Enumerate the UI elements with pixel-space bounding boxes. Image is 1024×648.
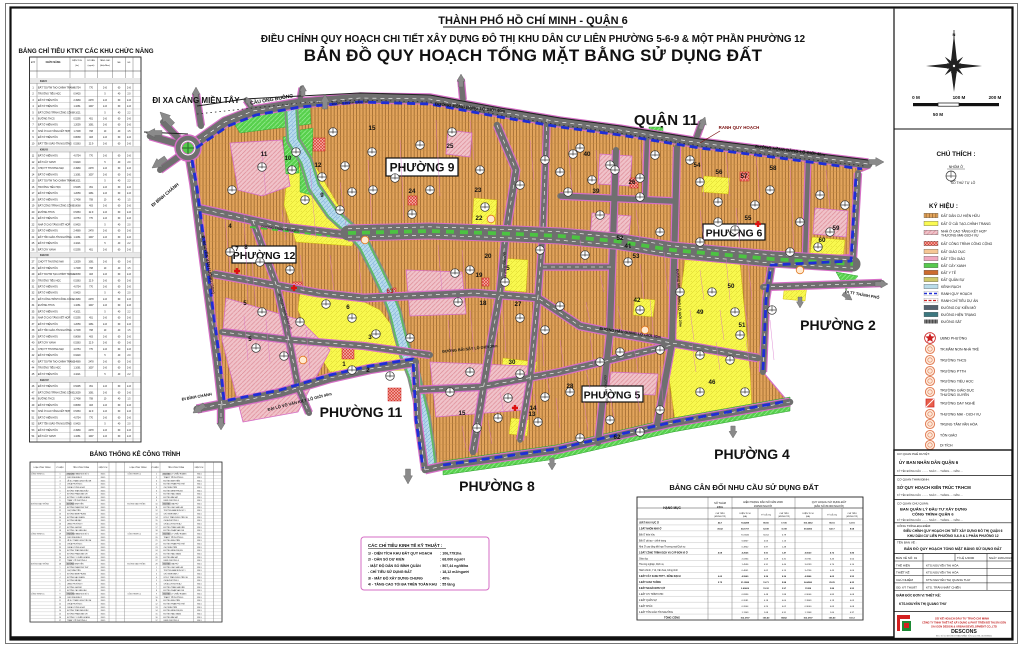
svg-text:KTS.NGUYỄN THỊ QUANG THƯ: KTS.NGUYỄN THỊ QUANG THƯ	[899, 601, 947, 606]
svg-text:25: 25	[447, 143, 454, 150]
svg-text:1061: 1061	[88, 262, 94, 264]
svg-text:RANH QUY HOẠCH: RANH QUY HOẠCH	[719, 125, 760, 130]
svg-text:4.0754: 4.0754	[73, 218, 81, 220]
svg-text:2/ - DÂN SỐ DỰ KIẾN: 2/ - DÂN SỐ DỰ KIẾN	[368, 557, 405, 562]
svg-text:ĐẤT Ở HIỆN HỮU: ĐẤT Ở HIỆN HỮU	[38, 192, 58, 195]
svg-text:CHỨC NĂNG: CHỨC NĂNG	[46, 61, 61, 64]
svg-text:DIỆN TÍCH: DIỆN TÍCH	[195, 466, 204, 469]
svg-text:ĐƯỜNG BÌNH TIÊN: ĐƯỜNG BÌNH TIÊN	[67, 503, 84, 506]
svg-text:DIỆN TÍCH: DIỆN TÍCH	[740, 512, 751, 515]
svg-text:TRƯỜNG DẠY NGHỀ: TRƯỜNG DẠY NGHỀ	[940, 401, 976, 406]
svg-text:ĐƯỜNG MINH PHỤNG: ĐƯỜNG MINH PHỤNG	[164, 489, 184, 492]
svg-text:CHÙA PHƯỜNG 5: CHÙA PHƯỜNG 5	[67, 602, 82, 605]
svg-text:ĐẤT Ở CẢI TẠO-CHỈNH TRANG: ĐẤT Ở CẢI TẠO-CHỈNH TRANG	[941, 221, 991, 226]
svg-text:ĐƯỜNG GIAO THÔNG: ĐƯỜNG GIAO THÔNG	[128, 563, 147, 566]
svg-text:KHU DÂN CƯ LIÊN PHƯỜNG 5-6-9 &: KHU DÂN CƯ LIÊN PHƯỜNG 5-6-9 & 1 PHẦN PH…	[907, 533, 998, 538]
svg-text:TỈ LỆ 1/2000: TỈ LỆ 1/2000	[957, 555, 975, 560]
svg-text:1.ĐẤT CH. TRÌNH KHO: 1.ĐẤT CH. TRÌNH KHO	[639, 593, 664, 596]
svg-text:0.9420: 0.9420	[73, 224, 81, 226]
svg-text:ĐẤT TÔN GIÁO-TÍN NGƯỠNG: ĐẤT TÔN GIÁO-TÍN NGƯỠNG	[38, 423, 72, 426]
svg-text:: 106,7791ha: : 106,7791ha	[440, 552, 462, 556]
svg-text:: 40%: : 40%	[440, 576, 450, 580]
svg-text:Đất Ở hiện hữu: Đất Ở hiện hữu	[639, 534, 656, 537]
svg-text:DESCONS: DESCONS	[951, 629, 977, 635]
svg-text:CHỢ-TT THƯƠNG MẠI: CHỢ-TT THƯƠNG MẠI	[38, 167, 64, 170]
svg-text:UBND PHƯỜNG 9: UBND PHƯỜNG 9	[67, 582, 82, 585]
svg-text:0.5363: 0.5363	[73, 143, 81, 145]
svg-text:1.2059: 1.2059	[73, 392, 81, 394]
svg-text:(HA): (HA)	[806, 515, 810, 518]
svg-text:SỐ THỨ TỰ LÔ: SỐ THỨ TỰ LÔ	[951, 180, 976, 185]
svg-text:TRUNG TÂM VĂN HÓA: TRUNG TÂM VĂN HÓA	[940, 422, 978, 427]
svg-text:LÊ B.C TRẦN DUNG TIỂU 3H: LÊ B.C TRẦN DUNG TIỂU 3H	[67, 599, 92, 602]
svg-text:HẠNG MỤC: HẠNG MỤC	[663, 506, 681, 510]
svg-text:0.5363: 0.5363	[73, 280, 81, 282]
svg-text:0.8068: 0.8068	[73, 405, 81, 407]
svg-text:PHƯỜNG 2: PHƯỜNG 2	[800, 316, 876, 333]
svg-text:ĐƯỜNG CAO VĂN LẦU: ĐƯỜNG CAO VĂN LẦU	[67, 529, 87, 532]
svg-text:1061: 1061	[88, 324, 94, 326]
svg-text:(Hiện/Max): (Hiện/Max)	[100, 65, 110, 67]
svg-text:TỶ LỆ (%): TỶ LỆ (%)	[827, 514, 837, 517]
svg-text:KHU II: KHU II	[40, 147, 48, 151]
svg-text:ĐƯỜNG THCS: ĐƯỜNG THCS	[38, 304, 55, 307]
svg-text:74.4288: 74.4288	[741, 522, 750, 525]
svg-text:CÔNG TRÌNH QUẬN 6: CÔNG TRÌNH QUẬN 6	[912, 512, 954, 517]
svg-text:DI TÍCH: DI TÍCH	[940, 444, 953, 448]
svg-text:23: 23	[475, 187, 482, 194]
svg-text:: 18,12 m2/người: : 18,12 m2/người	[440, 570, 469, 574]
svg-text:LOẠI CÔNG TRÌNH: LOẠI CÔNG TRÌNH	[34, 466, 51, 469]
svg-text:THƯỜNG XUYÊN: THƯỜNG XUYÊN	[940, 392, 969, 397]
svg-text:18: 18	[480, 300, 487, 307]
svg-text:1.1081: 1.1081	[73, 106, 81, 108]
svg-text:TRƯỜNG MẦM NON SỐ 1: TRƯỜNG MẦM NON SỐ 1	[67, 473, 89, 476]
svg-text:TỶ LỆ (%): TỶ LỆ (%)	[761, 514, 771, 517]
svg-text:DIỆN TÍCH: DIỆN TÍCH	[803, 512, 814, 515]
svg-text:50: 50	[728, 283, 735, 290]
svg-text:BẢNG CHỈ TIÊU KTKT CÁC KHU CHỨ: BẢNG CHỈ TIÊU KTKT CÁC KHU CHỨC NĂNG	[18, 47, 153, 55]
svg-text:ĐƯỜNG PHẠM VĂN CHÍ: ĐƯỜNG PHẠM VĂN CHÍ	[164, 589, 185, 592]
svg-text:4.ĐẤT TÔN GIÁO TÍN NGƯỠNG: 4.ĐẤT TÔN GIÁO TÍN NGƯỠNG	[639, 611, 673, 614]
svg-text:ĐẤT Ở HIỆN HỮU: ĐẤT Ở HIỆN HỮU	[38, 267, 58, 270]
svg-text:CHỢ BÌNH TIÊN: CHỢ BÌNH TIÊN	[67, 569, 81, 572]
svg-text:TRẠM Y TẾ PHƯỜNG 6: TRẠM Y TẾ PHƯỜNG 6	[164, 596, 184, 599]
svg-text:ĐƯỜNG BÃI SẬY: ĐƯỜNG BÃI SẬY	[164, 616, 179, 619]
svg-text:TRƯỜNG TIỂU HỌC: TRƯỜNG TIỂU HỌC	[38, 367, 61, 370]
svg-text:13: 13	[529, 411, 536, 418]
svg-text:0.2081: 0.2081	[742, 600, 749, 602]
svg-text:ĐẤT TÔN GIÁO: ĐẤT TÔN GIÁO	[941, 256, 966, 261]
svg-text:ĐƯỜNG PHẠM VĂN CHÍ: ĐƯỜNG PHẠM VĂN CHÍ	[67, 553, 88, 556]
svg-text:CHỈ TIÊU: CHỈ TIÊU	[779, 512, 789, 515]
svg-text:THIẾT KẾ: THIẾT KẾ	[896, 570, 909, 575]
svg-text:TRƯỜNG MẦM NON SỐ 1: TRƯỜNG MẦM NON SỐ 1	[164, 569, 186, 572]
svg-text:ĐẤT DÂN CƯ HIỆN HỮU: ĐẤT DÂN CƯ HIỆN HỮU	[941, 213, 980, 218]
svg-text:TRƯỜNG MẦM NON SỐ 1: TRƯỜNG MẦM NON SỐ 1	[67, 592, 89, 595]
svg-text:ĐƯỜNG LÝ CHIÊU HOÀNG: ĐƯỜNG LÝ CHIÊU HOÀNG	[67, 616, 91, 619]
svg-text:ĐƯỜNG HẬU GIANG: ĐƯỜNG HẬU GIANG	[67, 516, 85, 519]
svg-text:CHÙA PHƯỜNG 5: CHÙA PHƯỜNG 5	[67, 483, 82, 486]
svg-text:TRẠM Y TẾ PHƯỜNG 6: TRẠM Y TẾ PHƯỜNG 6	[164, 476, 184, 479]
svg-text:ĐƯỜNG BÃI SẬY: ĐƯỜNG BÃI SẬY	[67, 519, 82, 522]
svg-text:ĐƯỜNG TRẦN VĂN KIỂU: ĐƯỜNG TRẦN VĂN KIỂU	[164, 526, 186, 529]
svg-text:50 M: 50 M	[933, 112, 943, 117]
svg-text:Đ/C: SỐ 10 ĐƯỜNG TRẦN NHÂN TÔN: Đ/C: SỐ 10 ĐƯỜNG TRẦN NHÂN TÔN Q.10 TEL:…	[936, 635, 993, 638]
svg-text:4.1021: 4.1021	[73, 374, 81, 376]
svg-text:LÊ B.C TRẦN DUNG TIỂU 3H: LÊ B.C TRẦN DUNG TIỂU 3H	[164, 516, 189, 519]
svg-text:KTS. TRẦN NHẬT CHIẾN: KTS. TRẦN NHẬT CHIẾN	[926, 584, 961, 589]
svg-text:UBND PHƯỜNG: UBND PHƯỜNG	[940, 336, 967, 341]
svg-text:TÊN CÔNG TRÌNH: TÊN CÔNG TRÌNH	[73, 466, 90, 469]
svg-text:I.ĐẤT KHU VỰC Ở: I.ĐẤT KHU VỰC Ở	[639, 522, 659, 525]
svg-text:4.0754: 4.0754	[73, 417, 81, 419]
svg-text:CHỈ TIÊU: CHỈ TIÊU	[847, 512, 857, 515]
svg-text:ĐẤT CÂY XANH: ĐẤT CÂY XANH	[38, 248, 56, 251]
svg-text:BẢNG THỐNG KÊ CÔNG TRÌNH: BẢNG THỐNG KÊ CÔNG TRÌNH	[90, 450, 181, 458]
svg-text:CHỢ BÌNH TIÊN: CHỢ BÌNH TIÊN	[67, 509, 81, 512]
svg-text:SỐ DÂN: SỐ DÂN	[87, 59, 95, 62]
svg-text:LÊ B.C TRẦN DUNG TIỂU 3H: LÊ B.C TRẦN DUNG TIỂU 3H	[67, 539, 92, 542]
svg-text:106.40: 106.40	[829, 617, 836, 620]
svg-text:1007: 1007	[88, 174, 94, 176]
svg-text:BẢN ĐỒ QUY HOẠCH TỔNG MẶT BẰNG: BẢN ĐỒ QUY HOẠCH TỔNG MẶT BẰNG SỬ DỤNG Đ…	[304, 46, 763, 65]
svg-text:PHƯỜNG 11: PHƯỜNG 11	[320, 403, 403, 420]
svg-text:0.8336: 0.8336	[742, 594, 749, 596]
svg-text:0.5295: 0.5295	[73, 318, 81, 320]
svg-text:ĐƯỜNG TRẦN VĂN KIỂU: ĐƯỜNG TRẦN VĂN KIỂU	[67, 549, 89, 552]
svg-text:CHÚ VINH BÌNH 2: CHÚ VINH BÌNH 2	[67, 476, 82, 479]
svg-text:ĐƯỜNG PHẠM PHÚ THỨ: ĐƯỜNG PHẠM PHÚ THỨ	[67, 566, 89, 569]
svg-text:30: 30	[509, 359, 516, 366]
svg-text:ĐƯỜNG LÝ CHIÊU HOÀNG: ĐƯỜNG LÝ CHIÊU HOÀNG	[164, 592, 188, 595]
svg-text:CHÙA LƯƠNG HOA 2: CHÙA LƯƠNG HOA 2	[164, 582, 182, 585]
svg-text:TRƯỜNG PTTH: TRƯỜNG PTTH	[940, 369, 966, 374]
svg-text:TRẠM Y TẾ PHƯỜNG 6: TRẠM Y TẾ PHƯỜNG 6	[67, 619, 87, 622]
svg-text:ĐƯỜNG CAO VĂN LẦU: ĐƯỜNG CAO VĂN LẦU	[67, 589, 87, 592]
svg-text:6: 6	[346, 304, 350, 311]
svg-text:ĐƯỜNG GIA PHÚ: ĐƯỜNG GIA PHÚ	[67, 526, 83, 529]
svg-text:1.7408: 1.7408	[805, 612, 812, 614]
svg-text:KÝ HIỆU: KÝ HIỆU	[56, 466, 64, 469]
svg-text:62.08: 62.08	[763, 529, 769, 531]
svg-text:ĐẤT Ở HIỆN HỮU: ĐẤT Ở HIỆN HỮU	[38, 404, 58, 407]
svg-text:CƠ QUAN PHÊ DUYỆT:: CƠ QUAN PHÊ DUYỆT:	[897, 451, 930, 456]
svg-text:CHỢ BÌNH TIÊN: CHỢ BÌNH TIÊN	[164, 606, 178, 609]
svg-text:2478: 2478	[88, 361, 94, 363]
svg-text:ĐẤT Ở HIỆN HỮU: ĐẤT Ở HIỆN HỮU	[38, 173, 58, 176]
svg-text:1.7408: 1.7408	[73, 330, 81, 332]
svg-text:58: 58	[770, 165, 777, 172]
svg-text:22: 22	[476, 215, 483, 222]
svg-text:8: 8	[244, 244, 248, 251]
svg-text:62: 62	[614, 434, 621, 441]
svg-text:24: 24	[409, 188, 416, 195]
svg-text:NHÀ Ở CAO TẦNG KẾT HỢP: NHÀ Ở CAO TẦNG KẾT HỢP	[38, 410, 71, 413]
svg-text:TRƯỜNG MẦM NON SỐ 1: TRƯỜNG MẦM NON SỐ 1	[67, 533, 89, 536]
svg-text:TÔN GIÁO: TÔN GIÁO	[940, 433, 957, 438]
svg-text:64.17: 64.17	[829, 528, 835, 531]
svg-text:QUẬN 11: QUẬN 11	[634, 111, 698, 129]
svg-text:ĐƯỜNG MINH PHỤNG: ĐƯỜNG MINH PHỤNG	[164, 609, 184, 612]
svg-text:2478: 2478	[88, 100, 94, 102]
svg-text:ĐƯỜNG MINH PHỤNG: ĐƯỜNG MINH PHỤNG	[67, 513, 87, 516]
svg-text:ĐẤT Ở HIỆN HỮU: ĐẤT Ở HIỆN HỮU	[38, 230, 58, 233]
svg-text:50.64: 50.64	[763, 535, 769, 537]
svg-text:14: 14	[530, 405, 537, 412]
svg-text:2.ĐẤT QUÂN SỰ: 2.ĐẤT QUÂN SỰ	[639, 599, 657, 602]
svg-text:0.5363: 0.5363	[73, 212, 81, 214]
svg-text:0.9006: 0.9006	[805, 594, 812, 596]
svg-text:11: 11	[261, 151, 268, 158]
svg-text:1.7408: 1.7408	[73, 131, 81, 133]
svg-text:1007: 1007	[88, 436, 94, 438]
svg-text:51: 51	[739, 322, 746, 329]
svg-text:2.4969: 2.4969	[73, 299, 81, 301]
svg-text:PHƯỜNG 9: PHƯỜNG 9	[390, 160, 455, 175]
svg-text:TRẠM Y TẾ PHƯỜNG 6: TRẠM Y TẾ PHƯỜNG 6	[67, 499, 87, 502]
svg-text:53: 53	[633, 253, 640, 260]
svg-text:ĐƯỜNG BÌNH TIÊN: ĐƯỜNG BÌNH TIÊN	[164, 539, 181, 542]
svg-text:CÔNG TRÌNH-ĐỊA ĐIỂM:: CÔNG TRÌNH-ĐỊA ĐIỂM:	[897, 523, 931, 528]
svg-text:22.9: 22.9	[89, 411, 94, 413]
svg-text:64.1707: 64.1707	[741, 528, 750, 531]
svg-text:4.1021: 4.1021	[73, 311, 81, 313]
svg-text:ĐỊNH: ĐỊNH	[717, 505, 723, 509]
svg-text:21.0588: 21.0588	[741, 582, 750, 584]
svg-text:UBND PHƯỜNG 9: UBND PHƯỜNG 9	[164, 619, 179, 622]
svg-text:1.1081: 1.1081	[73, 174, 81, 176]
svg-text:40: 40	[584, 151, 591, 158]
svg-text:52: 52	[617, 235, 624, 242]
svg-text:ĐẤT T.DVTM TẠO-CHỈNH TRANG: ĐẤT T.DVTM TẠO-CHỈNH TRANG	[38, 86, 75, 89]
svg-text:DIỆN TÍCH: DIỆN TÍCH	[99, 466, 108, 469]
svg-text:ĐẤT Ở HIỆN HỮU: ĐẤT Ở HIỆN HỮU	[38, 335, 58, 338]
svg-text:(M2/NGƯỜI): (M2/NGƯỜI)	[846, 515, 858, 518]
svg-text:RANH QUY HOẠCH: RANH QUY HOẠCH	[941, 292, 973, 296]
svg-text:39: 39	[593, 188, 600, 195]
svg-text:CÔNG TY TNHH THIẾT KẾ XÂY DỰNG: CÔNG TY TNHH THIẾT KẾ XÂY DỰNG & PHÁT TR…	[922, 622, 1006, 625]
svg-text:CHÚ THÍCH :: CHÚ THÍCH :	[936, 149, 975, 158]
svg-text:LÊ B.C TRẦN DUNG TIỂU 3H: LÊ B.C TRẦN DUNG TIỂU 3H	[67, 479, 92, 482]
svg-text:TR.MẦM NON-NHÀ TRẺ: TR.MẦM NON-NHÀ TRẺ	[940, 347, 980, 352]
svg-text:KÊNH RẠCH: KÊNH RẠCH	[941, 284, 962, 289]
svg-text:ĐƯỜNG BÃI SẬY: ĐƯỜNG BÃI SẬY	[67, 579, 82, 582]
svg-text:Giáo dục: Giáo dục	[639, 558, 649, 560]
svg-text:ĐƯỜNG PHẠM VĂN CHÍ: ĐƯỜNG PHẠM VĂN CHÍ	[67, 612, 88, 615]
svg-text:ĐƯỜNG TRẦN VĂN KIỂU: ĐƯỜNG TRẦN VĂN KIỂU	[164, 586, 186, 589]
svg-text:106.40: 106.40	[763, 617, 770, 620]
svg-text:ĐƯỜNG PHẠM PHÚ THỨ: ĐƯỜNG PHẠM PHÚ THỨ	[164, 543, 186, 546]
svg-text:PHƯỜNG 4: PHƯỜNG 4	[714, 445, 790, 462]
svg-text:UBND PHƯỜNG 9: UBND PHƯỜNG 9	[67, 523, 82, 526]
svg-text:4.9960: 4.9960	[742, 575, 749, 578]
svg-text:ĐI XA CẢNG MIỀN TÂY: ĐI XA CẢNG MIỀN TÂY	[152, 95, 240, 105]
svg-text:3.ĐẤT CÂY XANH TDTT - KÊNH RẠC: 3.ĐẤT CÂY XANH TDTT - KÊNH RẠCH	[639, 575, 681, 578]
svg-text:CÁC CHỈ TIÊU KINH TẾ KỸ THUẬT: CÁC CHỈ TIÊU KINH TẾ KỸ THUẬT :	[368, 543, 443, 548]
svg-text:2.4969: 2.4969	[73, 100, 81, 102]
svg-text:ĐẤT CÂY XANH: ĐẤT CÂY XANH	[38, 161, 56, 164]
svg-text:CHÙA PHƯỜNG 5: CHÙA PHƯỜNG 5	[164, 519, 179, 522]
svg-text:THÀNH PHỐ HỒ CHÍ MINH - QUẬN 6: THÀNH PHỐ HỒ CHÍ MINH - QUẬN 6	[438, 13, 627, 27]
svg-text:19.73: 19.73	[763, 582, 769, 584]
svg-text:ĐẤT Ở HIỆN HỮU: ĐẤT Ở HIỆN HỮU	[38, 242, 58, 245]
svg-text:4: 4	[228, 223, 232, 230]
svg-text:MĐ: MĐ	[117, 62, 121, 64]
svg-text:ĐƯỜNG THCS: ĐƯỜNG THCS	[38, 211, 55, 214]
svg-text:2478: 2478	[88, 168, 94, 170]
svg-text:ĐẤT T.DVTM TẠO-CHỈNH TRANG: ĐẤT T.DVTM TẠO-CHỈNH TRANG	[38, 360, 75, 363]
svg-text:0.5363: 0.5363	[73, 411, 81, 413]
svg-text:ĐẤT Ở HIỆN HỮU: ĐẤT Ở HIỆN HỮU	[38, 373, 58, 376]
svg-text:TẦNG CAO: TẦNG CAO	[100, 59, 111, 62]
svg-text:CÔNG TRÌNH CC: CÔNG TRÌNH CC	[31, 473, 45, 476]
svg-text:4.5020: 4.5020	[805, 551, 812, 554]
svg-text:NHÓM Ở: NHÓM Ở	[949, 164, 963, 169]
svg-text:CHÙA LƯƠNG HOA 2: CHÙA LƯƠNG HOA 2	[67, 486, 85, 489]
svg-text:ĐẤT Ở HIỆN HỮU: ĐẤT Ở HIỆN HỮU	[38, 416, 58, 419]
svg-text:ĐẤT Ở HIỆN HỮU: ĐẤT Ở HIỆN HỮU	[38, 429, 58, 432]
svg-text:CÔNG TRÌNH CC: CÔNG TRÌNH CC	[128, 592, 142, 595]
svg-text:CÔNG TRÌNH CC: CÔNG TRÌNH CC	[128, 533, 142, 536]
svg-text:KTS.NGUYỄN THỊ HÒA: KTS.NGUYỄN THỊ HÒA	[926, 570, 958, 575]
svg-text:II.ĐẤT NGOÀI ĐƠN VỊ Ở: II.ĐẤT NGOÀI ĐƠN VỊ Ở	[639, 587, 665, 590]
svg-text:1061: 1061	[88, 392, 94, 394]
svg-text:ĐẤT T.DVTM TẠO-CHỈNH TRANG: ĐẤT T.DVTM TẠO-CHỈNH TRANG	[38, 273, 75, 276]
svg-text:1007: 1007	[88, 305, 94, 307]
svg-text:0.9420: 0.9420	[73, 162, 81, 164]
svg-text:ĐƯỜNG CAO VĂN LẦU: ĐƯỜNG CAO VĂN LẦU	[164, 506, 184, 509]
svg-text:0.8068: 0.8068	[73, 137, 81, 139]
svg-text:SỞ KẾ HOẠCH ĐẦU TƯ TP.HỒ CHÍ M: SỞ KẾ HOẠCH ĐẦU TƯ TP.HỒ CHÍ MINH	[935, 616, 989, 621]
svg-text:GIÁM ĐỐC ĐƠN VỊ THIẾT KẾ:: GIÁM ĐỐC ĐƠN VỊ THIẾT KẾ:	[896, 593, 941, 598]
svg-text:TRƯỜNG TIỂU HỌC: TRƯỜNG TIỂU HỌC	[38, 93, 61, 96]
svg-text:ĐƯỜNG GIA PHÚ: ĐƯỜNG GIA PHÚ	[164, 503, 180, 506]
svg-text:ĐẤT Ở HIỆN HỮU: ĐẤT Ở HIỆN HỮU	[38, 310, 58, 313]
svg-text:ĐƯỜNG LÝ CHIÊU HOÀNG: ĐƯỜNG LÝ CHIÊU HOÀNG	[164, 533, 188, 536]
svg-text:26: 26	[629, 179, 636, 186]
svg-text:ĐẤT CÔNG TRÌNH CÔNG CỘNG: ĐẤT CÔNG TRÌNH CÔNG CỘNG	[38, 205, 74, 208]
svg-text:3.60609: 3.60609	[741, 588, 750, 590]
svg-text:102.2797: 102.2797	[740, 618, 750, 620]
svg-text:ĐẤT CÔNG TRÌNH CÔNG CỘNG: ĐẤT CÔNG TRÌNH CÔNG CỘNG	[941, 241, 993, 246]
svg-text:57: 57	[741, 173, 748, 180]
svg-text:TRƯỜNG TIỂU HỌC: TRƯỜNG TIỂU HỌC	[38, 186, 61, 189]
svg-text:1.4536: 1.4536	[742, 564, 749, 566]
svg-text:ĐẤT Y TẾ: ĐẤT Y TẾ	[941, 270, 957, 275]
svg-text:RANH CHỈ TIÊU DỰ ÁN: RANH CHỈ TIÊU DỰ ÁN	[941, 298, 978, 303]
svg-text:DIỆN TÍCH: DIỆN TÍCH	[72, 59, 83, 62]
svg-text:ĐẤT Ở HIỆN HỮU: ĐẤT Ở HIỆN HỮU	[38, 286, 58, 289]
svg-text:ĐƯỜNG HẬU GIANG: ĐƯỜNG HẬU GIANG	[164, 553, 182, 556]
svg-text:10: 10	[285, 155, 292, 162]
svg-text:ĐƯỜNG SẮT: ĐƯỜNG SẮT	[941, 319, 962, 324]
svg-text:UBND PHƯỜNG 9: UBND PHƯỜNG 9	[164, 559, 179, 562]
svg-text:59: 59	[833, 225, 840, 232]
svg-text:STT: STT	[31, 62, 36, 64]
svg-text:ĐẤT TÔN GIÁO-TÍN NGƯỠNG: ĐẤT TÔN GIÁO-TÍN NGƯỠNG	[38, 142, 72, 145]
svg-text:CÔNG TRÌNH CC: CÔNG TRÌNH CC	[31, 592, 45, 595]
svg-text:19: 19	[476, 272, 483, 279]
svg-text:ĐƯỜNG MINH PHỤNG: ĐƯỜNG MINH PHỤNG	[67, 573, 87, 576]
svg-text:0.8068: 0.8068	[73, 336, 81, 338]
svg-text:ĐẤT CÔNG TRÌNH CÔNG CỘNG: ĐẤT CÔNG TRÌNH CÔNG CỘNG	[38, 298, 74, 301]
svg-text:LÊ B.C TRẦN DUNG TIỂU 3H: LÊ B.C TRẦN DUNG TIỂU 3H	[164, 576, 189, 579]
svg-text:0.8068: 0.8068	[73, 274, 81, 276]
svg-text:CHỦ NHIỆM: CHỦ NHIỆM	[896, 577, 914, 582]
svg-text:2478: 2478	[88, 231, 94, 233]
svg-text:CÔNG TRÌNH CC: CÔNG TRÌNH CC	[128, 473, 142, 476]
svg-text:25.25: 25.25	[829, 582, 835, 584]
svg-text:Thương nghiệp, Dịch vụ: Thương nghiệp, Dịch vụ	[639, 564, 664, 566]
svg-text:17.06: 17.06	[781, 523, 787, 525]
svg-text:NHÀ Ở CAO TẦNG KẾT HỢP: NHÀ Ở CAO TẦNG KẾT HỢP	[38, 223, 71, 226]
svg-text:ĐẤT Ở HIỆN HỮU: ĐẤT Ở HIỆN HỮU	[38, 217, 58, 220]
svg-text:200 M: 200 M	[989, 95, 1002, 100]
svg-text:CƠ QUAN THẨM ĐỊNH:: CƠ QUAN THẨM ĐỊNH:	[897, 477, 930, 482]
svg-text:ĐẤT Ở HIỆN HỮU: ĐẤT Ở HIỆN HỮU	[38, 124, 58, 127]
svg-text:CHÚ VINH BÌNH 2: CHÚ VINH BÌNH 2	[67, 596, 82, 599]
svg-text:ĐẤT TÔN GIÁO-TÍN NGƯỠNG: ĐẤT TÔN GIÁO-TÍN NGƯỠNG	[38, 236, 72, 239]
svg-text:ĐƯỜNG PHẠM PHÚ THỨ: ĐƯỜNG PHẠM PHÚ THỨ	[164, 483, 186, 486]
svg-text:BẢNG CÂN ĐỐI NHU CẦU SỬ DỤNG Đ: BẢNG CÂN ĐỐI NHU CẦU SỬ DỤNG ĐẤT	[669, 482, 819, 492]
svg-text:1007: 1007	[88, 106, 94, 108]
svg-text:ĐIỀU CHỈNH QUY HOẠCH CHI TIẾT: ĐIỀU CHỈNH QUY HOẠCH CHI TIẾT XÂY DỰNG Đ…	[904, 528, 1003, 533]
svg-text:ĐẤT Ở HIỆN HỮU: ĐẤT Ở HIỆN HỮU	[38, 136, 58, 139]
svg-text:CÔNG TRÌNH CC: CÔNG TRÌNH CC	[31, 533, 45, 536]
svg-text:ĐƯỜNG LÝ CHIÊU HOÀNG: ĐƯỜNG LÝ CHIÊU HOÀNG	[164, 473, 188, 476]
svg-text:: 55 tầng: : 55 tầng	[440, 583, 455, 587]
svg-text:ĐƯỜNG PHẠM PHÚ THỨ: ĐƯỜNG PHẠM PHÚ THỨ	[164, 602, 186, 605]
svg-text:2.3949: 2.3949	[805, 600, 812, 602]
svg-text:ĐƯỜNG THCS: ĐƯỜNG THCS	[38, 118, 55, 121]
svg-text:0.4902: 0.4902	[742, 546, 749, 548]
svg-text:1.2059: 1.2059	[73, 262, 81, 264]
svg-text:60: 60	[819, 237, 826, 244]
svg-text:PHƯỜNG 8: PHƯỜNG 8	[459, 477, 535, 494]
svg-text:ĐƯỜNG THCS: ĐƯỜNG THCS	[38, 398, 55, 401]
svg-text:0.9420: 0.9420	[73, 424, 81, 426]
svg-text:1.7408: 1.7408	[73, 399, 81, 401]
svg-text:ĐẤT Ở HIỆN HỮU: ĐẤT Ở HIỆN HỮU	[38, 198, 58, 201]
svg-text:PHƯỜNG 5: PHƯỜNG 5	[584, 389, 641, 402]
svg-text:100 M: 100 M	[953, 95, 966, 100]
svg-text:KÝ HIỆU :: KÝ HIỆU :	[929, 202, 958, 210]
svg-text:3.ĐẤT KHÁC: 3.ĐẤT KHÁC	[639, 605, 653, 608]
svg-text:ĐƯỜNG PHẠM VĂN CHÍ: ĐƯỜNG PHẠM VĂN CHÍ	[164, 529, 185, 532]
svg-text:TÊN BẢN VẼ :: TÊN BẢN VẼ :	[897, 540, 917, 545]
svg-text:1.1081: 1.1081	[73, 368, 81, 370]
svg-text:ĐƯỜNG HẬU GIANG: ĐƯỜNG HẬU GIANG	[67, 576, 85, 579]
svg-text:ĐƯỜNG LÝ CHIÊU HOÀNG: ĐƯỜNG LÝ CHIÊU HOÀNG	[67, 496, 91, 499]
svg-text:ĐƯỜNG BÌNH TIÊN: ĐƯỜNG BÌNH TIÊN	[164, 599, 181, 602]
svg-text:CHÙA LƯƠNG HOA 2: CHÙA LƯƠNG HOA 2	[164, 523, 182, 526]
svg-text:7: 7	[235, 246, 239, 253]
svg-text:0.5295: 0.5295	[73, 119, 81, 121]
svg-text:5: 5	[248, 336, 252, 343]
svg-text:2.ĐẤT CÔNG TRÌNH DỊCH VỤ CẤP Đ: 2.ĐẤT CÔNG TRÌNH DỊCH VỤ CẤP ĐƠN VỊ Ở	[639, 551, 688, 554]
svg-text:ĐƯỜNG PHẠM PHÚ THỨ: ĐƯỜNG PHẠM PHÚ THỨ	[67, 506, 89, 509]
svg-text:54: 54	[694, 162, 701, 169]
svg-text:0.5363: 0.5363	[73, 343, 81, 345]
svg-text:ĐƯỜNG GIA PHÚ: ĐƯỜNG GIA PHÚ	[164, 563, 180, 566]
svg-text:KTS.NGUYỄN THỊ HÒA: KTS.NGUYỄN THỊ HÒA	[926, 562, 958, 567]
svg-text:ĐẤT CÔNG TRÌNH CÔNG CỘNG: ĐẤT CÔNG TRÌNH CÔNG CỘNG	[38, 111, 74, 114]
svg-text:3/ - MẬT ĐỘ XÂY DỰNG CHUNG: 3/ - MẬT ĐỘ XÂY DỰNG CHUNG	[368, 575, 423, 580]
svg-text:0.9420: 0.9420	[73, 94, 81, 96]
svg-text:BẢN ĐỒ QUY HOẠCH TỔNG MẶT BẰNG: BẢN ĐỒ QUY HOẠCH TỔNG MẶT BẰNG SỬ DỤNG Đ…	[904, 546, 1002, 551]
svg-text:ĐƯỜNG CAO VĂN LẦU: ĐƯỜNG CAO VĂN LẦU	[164, 566, 184, 569]
